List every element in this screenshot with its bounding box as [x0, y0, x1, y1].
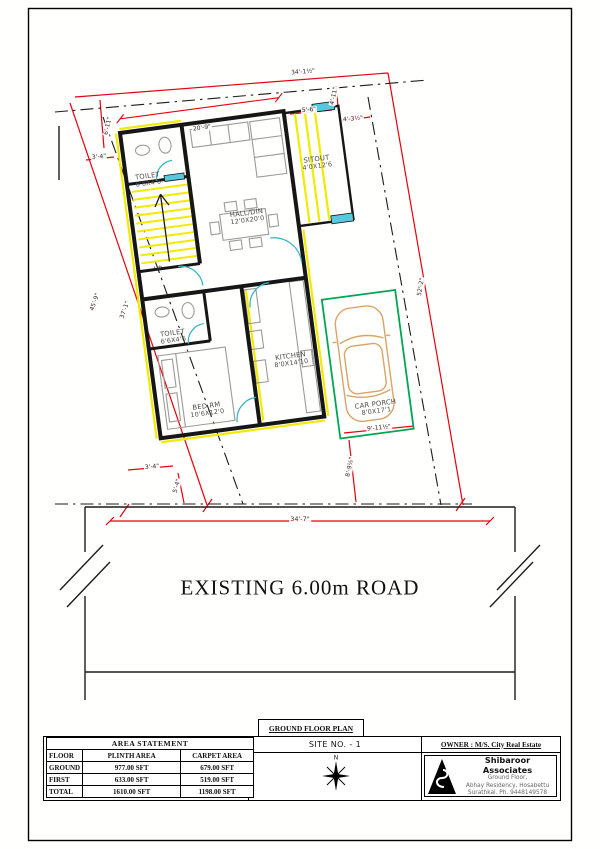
road-label: EXISTING 6.00m ROAD — [181, 575, 420, 600]
cell-carpet: 1198.00 SFT — [181, 786, 254, 798]
cell-carpet: 519.00 SFT — [181, 774, 254, 786]
cell-floor: GROUND — [47, 762, 83, 774]
room-label-toilet-1: TOILET 6'6X4'6 — [134, 170, 161, 189]
compass-cell: N — [248, 753, 422, 800]
cell-plinth: 1610.00 SFT — [83, 786, 181, 798]
dim-frontage: 34'-7" — [289, 516, 311, 524]
col-header-carpet: CARPET AREA — [181, 750, 254, 762]
table-header-row: FLOOR PLINTH AREA CARPET AREA — [47, 750, 254, 762]
dim-3-4-bottom: 3'-4" — [144, 463, 161, 472]
firm-address-2: Abhay Residency, Hosabettu — [459, 783, 556, 790]
washbasin — [135, 144, 150, 156]
cell-plinth: 633.00 SFT — [83, 774, 181, 786]
firm-text: Shibaroor Associates Ground Floor, Abhay… — [459, 755, 556, 797]
firm-name: Shibaroor Associates — [459, 755, 556, 776]
site-no-label: SITE NO. - 1 — [309, 740, 361, 749]
plan-title: GROUND FLOOR PLAN — [269, 724, 353, 733]
firm-logo-icon — [425, 756, 459, 796]
col-header-floor: FLOOR — [47, 750, 83, 762]
area-statement-title: AREA STATEMENT — [47, 738, 254, 750]
plan-title-box: GROUND FLOOR PLAN — [258, 719, 364, 737]
stair-up-label: UP — [154, 265, 163, 273]
dim-3-4-top: 3'-4" — [91, 153, 108, 162]
room-label-toilet-2: TOILET 6'6X4'6 — [159, 327, 186, 346]
cell-floor: FIRST — [47, 774, 83, 786]
owner-cell: OWNER : M/S. City Real Estate — [422, 737, 560, 753]
site-no-cell: SITE NO. - 1 — [248, 737, 422, 753]
wc — [158, 136, 172, 153]
front-wall-dim-line — [116, 93, 284, 123]
table-row: FIRST 633.00 SFT 519.00 SFT — [47, 774, 254, 786]
cell-floor: TOTAL — [47, 786, 83, 798]
table-row: GROUND 977.00 SFT 679.00 SFT — [47, 762, 254, 774]
table-title-row: AREA STATEMENT — [47, 738, 254, 750]
dim-5-6: 5'-6" — [301, 106, 318, 114]
owner-label: OWNER : M/S. City Real Estate — [441, 741, 541, 749]
cell-plinth: 977.00 SFT — [83, 762, 181, 774]
firm-cell: Shibaroor Associates Ground Floor, Abhay… — [424, 755, 557, 797]
drawing-sheet: TOILET 6'6X4'6 HALL/DIN 12'0X20'0 SITOUT… — [0, 0, 600, 849]
firm-address-1: Ground Floor, — [459, 775, 556, 782]
north-label: N — [334, 755, 339, 762]
table-row: TOTAL 1610.00 SFT 1198.00 SFT — [47, 786, 254, 798]
cell-carpet: 679.00 SFT — [181, 762, 254, 774]
col-header-plinth: PLINTH AREA — [83, 750, 181, 762]
firm-phone: Surathkal. Ph. 9448149578 — [459, 790, 556, 797]
area-statement-table: AREA STATEMENT FLOOR PLINTH AREA CARPET … — [46, 737, 254, 798]
